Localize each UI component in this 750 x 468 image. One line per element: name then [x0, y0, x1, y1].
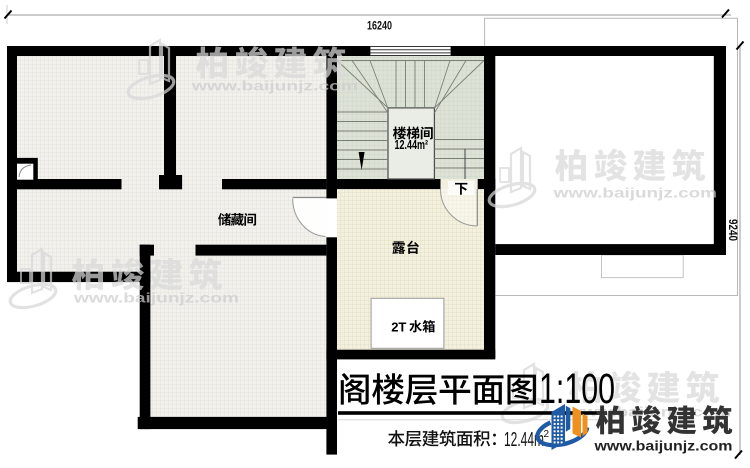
svg-text:9240: 9240 — [726, 219, 738, 241]
svg-text:16240: 16240 — [367, 21, 392, 33]
svg-text:www.baijunjz.com: www.baijunjz.com — [191, 78, 358, 94]
svg-text:www.baijunjz.com: www.baijunjz.com — [593, 439, 732, 454]
svg-text:12.44m²: 12.44m² — [395, 138, 429, 152]
svg-text:2: 2 — [544, 429, 550, 440]
svg-text:www.baijunjz.com: www.baijunjz.com — [552, 185, 717, 201]
svg-text:www.baijunjz.com: www.baijunjz.com — [73, 290, 239, 306]
svg-text:2T: 2T — [391, 319, 406, 334]
